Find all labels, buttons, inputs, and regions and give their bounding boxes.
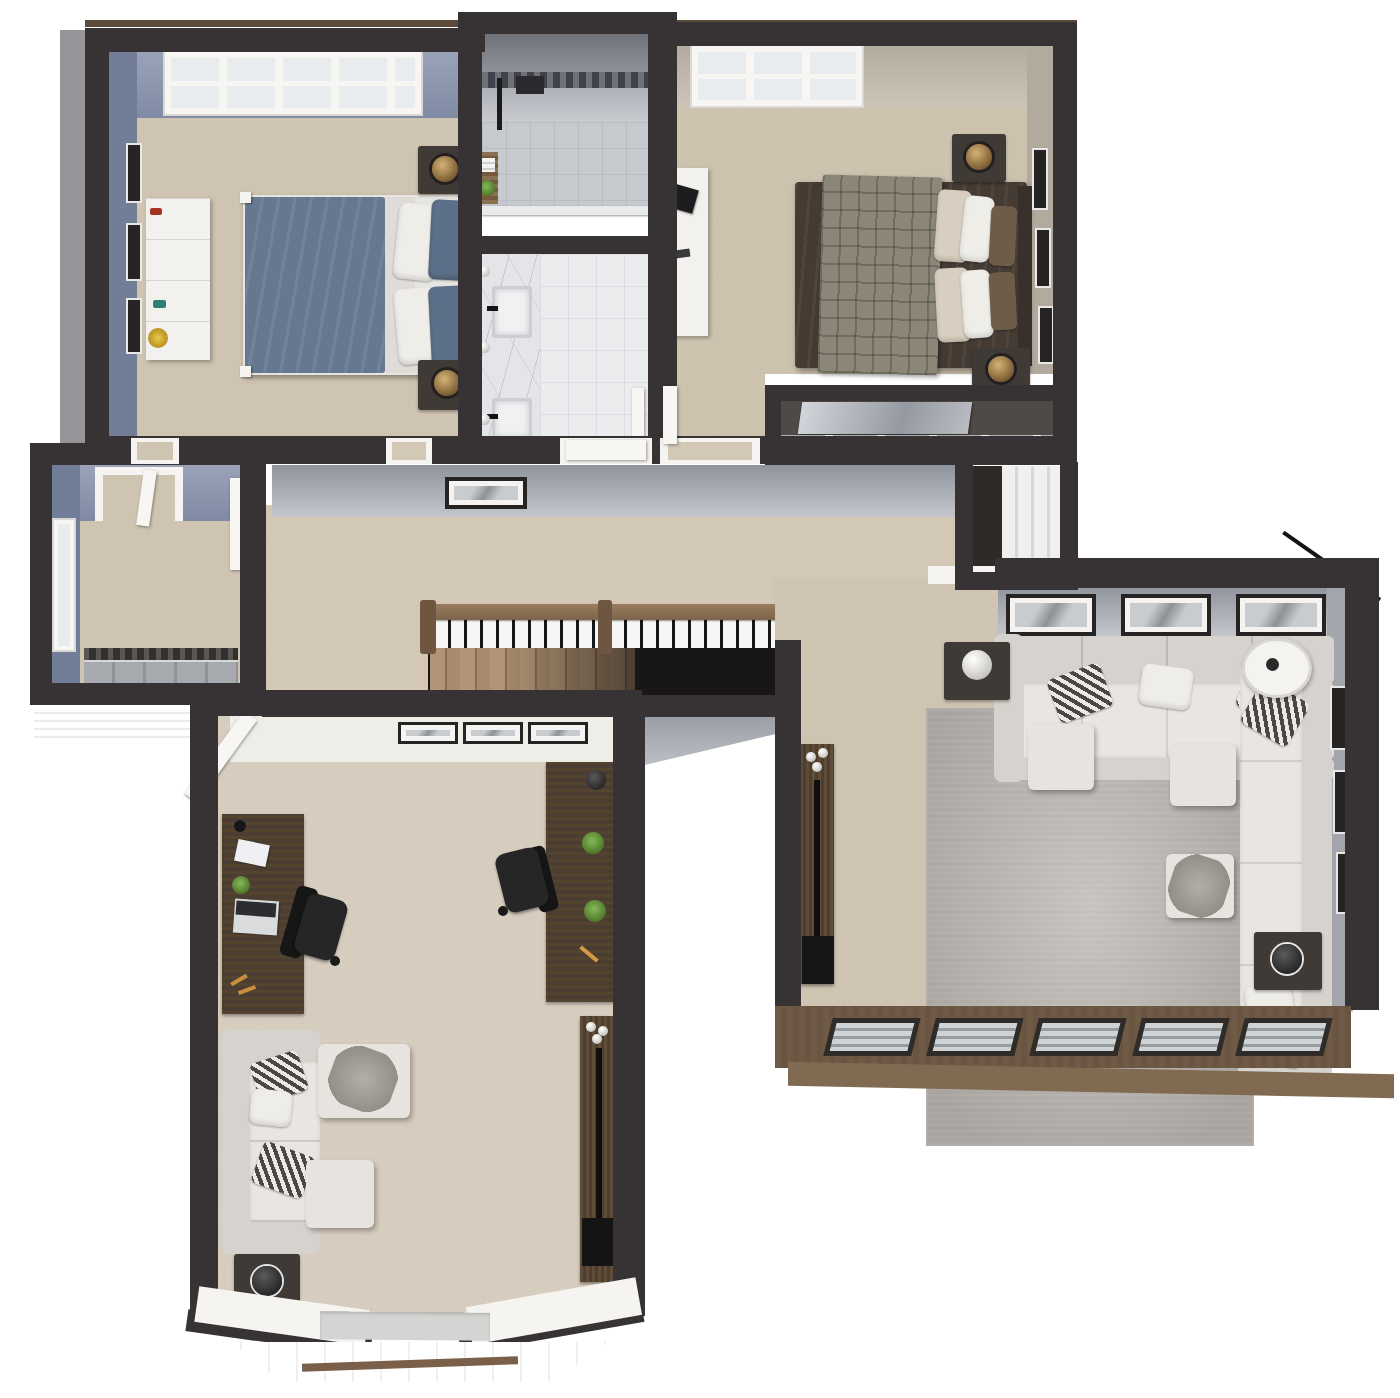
wall-bed1-left <box>85 28 109 460</box>
wall-living-left <box>775 640 801 1012</box>
office-chair-right-base <box>498 906 508 916</box>
wall-closetroom-right <box>240 443 266 707</box>
shower-mosaic-band <box>482 72 650 88</box>
bedroom2-lamp-top <box>966 144 992 170</box>
living-gym-knob-3 <box>812 762 822 772</box>
louver-window-2 <box>926 1018 1023 1056</box>
louver-window-3 <box>1029 1018 1126 1056</box>
shower-glass-door <box>482 206 650 215</box>
office-gym-box <box>582 1218 616 1266</box>
exterior-left-face <box>60 30 86 458</box>
office-pillow-white <box>248 1088 294 1128</box>
shower-fixture-bar <box>497 78 502 130</box>
floor-plan-stage <box>0 0 1400 1398</box>
louver-window-4 <box>1132 1018 1229 1056</box>
desk-left-laptop-screen <box>236 901 277 918</box>
shower-back-wall <box>482 32 650 72</box>
wall-nook-left <box>955 462 973 590</box>
living-wall-frame-top-2 <box>1121 594 1211 636</box>
bedroom2-window <box>692 46 862 106</box>
office-gym-knob-1 <box>586 1022 596 1032</box>
office-ottoman <box>306 1160 374 1228</box>
closet-room-window <box>54 520 74 650</box>
desk-right-lamp <box>586 770 606 790</box>
vanity-faucet-1 <box>487 306 498 311</box>
bay-window-seat <box>320 1311 490 1340</box>
bedroom2-wall-frame-3 <box>1038 306 1054 364</box>
wall-closet2-top <box>765 385 1075 401</box>
bedroom2-wall-frame-2 <box>1035 228 1051 288</box>
office-gym-slot <box>596 1048 602 1218</box>
stair-newel-post-mid <box>598 600 612 654</box>
wall-bath-divider <box>482 236 650 254</box>
bedroom1-lamp-top <box>432 156 458 182</box>
bedroom2-open-door-leaf <box>663 386 677 444</box>
attic-stairs <box>1002 466 1062 572</box>
louver-window-1 <box>823 1018 920 1056</box>
office-desk-right <box>546 762 614 1002</box>
office-wall-frame-top-2 <box>463 722 523 744</box>
wall-bed1-top <box>85 28 485 52</box>
wall-living-right <box>1345 558 1379 1010</box>
office-sofa-arm-bottom <box>222 1222 320 1254</box>
bed1-post-bl <box>240 366 251 377</box>
wall-office-right <box>613 714 645 1316</box>
desk-right-plant-2 <box>584 900 606 922</box>
stair-newel-post-left <box>420 600 436 654</box>
bedroom2-wall-frame-1 <box>1032 148 1048 210</box>
office-sofa-back <box>222 1030 250 1254</box>
bedroom2-brown-pillow-1 <box>988 205 1017 266</box>
door-gap-bed1-closet-floor <box>137 442 173 460</box>
bedroom1-window <box>165 52 421 114</box>
office-side-table-lamp <box>252 1266 282 1296</box>
living-wall-frame-top-3 <box>1236 594 1326 636</box>
living-gym-box <box>802 936 834 984</box>
bedroom1-wall-frame-3 <box>126 298 142 354</box>
bedroom2-headboard <box>1018 186 1032 366</box>
office-gym-knob-3 <box>592 1034 602 1044</box>
bed1-post-tl <box>240 192 251 203</box>
shower-floor <box>482 122 650 212</box>
bedroom2-brown-pillow-2 <box>989 271 1018 330</box>
bedroom2-plaid-throw <box>817 174 942 375</box>
living-gym-knob-2 <box>818 748 828 758</box>
desk-right-plant-1 <box>582 832 604 854</box>
bedroom1-wall-frame-1 <box>126 143 142 203</box>
wall-closetroom-left <box>30 443 52 705</box>
bedroom1-duvet <box>245 197 385 373</box>
wall-office-top <box>190 690 642 716</box>
living-pillow-white-1 <box>1137 663 1194 712</box>
closet-clothes-rail <box>84 648 238 660</box>
office-wall-frame-top-3 <box>528 722 588 744</box>
wall-living-top <box>995 558 1347 588</box>
living-gym-knob-1 <box>806 752 816 762</box>
vanity-sink-1 <box>492 286 532 338</box>
door-gap-bed1-hall-floor <box>392 442 426 460</box>
wall-office-left <box>190 690 218 1316</box>
closet2-mirror-panel <box>798 402 972 434</box>
bedroom1-lamp-bottom <box>434 370 460 396</box>
vanity-sink-2 <box>492 398 532 440</box>
living-wall-frame-top-1 <box>1006 594 1096 636</box>
living-entry-floor <box>775 578 801 640</box>
dresser-decor-red <box>150 208 162 215</box>
hall-bath-open-door <box>566 440 646 460</box>
dresser-decor-teal <box>153 300 166 308</box>
hallway-wall-art <box>445 477 527 509</box>
bedroom1-wall-frame-2 <box>126 223 142 281</box>
shower-tile-wall <box>482 88 650 122</box>
office-wall-frame-top-1 <box>398 722 458 744</box>
living-gym-slot <box>814 780 820 940</box>
desk-left-camera <box>234 820 246 832</box>
wall-bed1-bath <box>458 12 482 462</box>
bedroom2-lamp-bottom <box>988 356 1014 382</box>
desk-left-plant <box>232 876 250 894</box>
living-ottoman-2 <box>1170 744 1236 806</box>
wall-bed2-top <box>655 22 1077 46</box>
shower-head <box>516 76 544 94</box>
hallway-north-wall-face <box>272 465 962 517</box>
dresser-decor-flower <box>148 328 168 348</box>
office-chair-left-base <box>330 956 340 966</box>
living-ottoman-1 <box>1028 724 1094 790</box>
arc-lamp-bulb <box>1266 658 1279 671</box>
wall-bath-top <box>460 12 672 34</box>
louver-window-5 <box>1235 1018 1332 1056</box>
living-sphere-lamp <box>962 650 992 680</box>
living-black-lamp <box>1272 944 1302 974</box>
door-gap-hall-bed2-floor <box>668 442 752 460</box>
